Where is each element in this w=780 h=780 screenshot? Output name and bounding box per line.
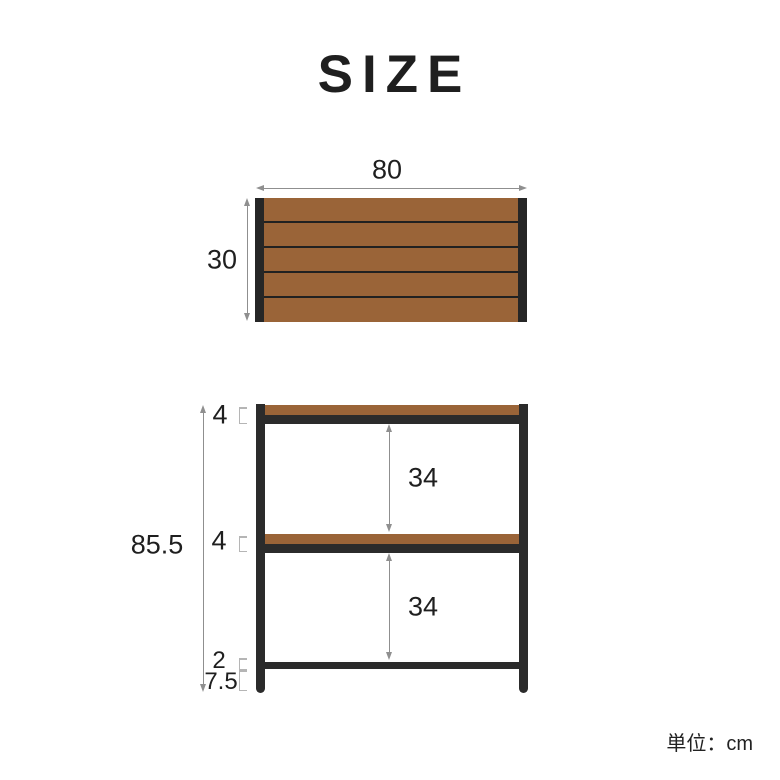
top-width-label: 80 xyxy=(372,157,402,184)
total-height-arrow-icon xyxy=(199,405,208,692)
left-leg xyxy=(256,404,265,693)
depth-dimension-arrow-icon xyxy=(243,198,252,321)
middle-shelf-frame xyxy=(256,544,528,553)
top-view-right-frame xyxy=(518,198,527,322)
size-diagram: SIZE 80 30 85.5 4 4 2 7.5 34 34 単位：cm xyxy=(0,0,780,780)
width-dimension-arrow-icon xyxy=(256,184,527,193)
top-depth-label: 30 xyxy=(207,247,237,274)
plank-divider xyxy=(263,246,519,248)
lower-gap-arrow-icon xyxy=(385,553,394,660)
lower-gap-label: 34 xyxy=(408,594,438,621)
top-shelf-frame xyxy=(256,415,528,424)
top-shelf-thickness-label: 4 xyxy=(212,402,227,429)
right-leg xyxy=(519,404,528,693)
leg-bracket-icon xyxy=(239,670,249,691)
top-view-left-frame xyxy=(255,198,264,322)
leg-height-label: 7.5 xyxy=(204,670,237,694)
top-view-panel xyxy=(255,198,527,322)
bottom-crossbar xyxy=(258,662,526,669)
middle-shelf-bracket-icon xyxy=(239,536,249,552)
total-height-label: 85.5 xyxy=(131,532,184,559)
page-title: SIZE xyxy=(0,44,780,105)
middle-shelf-wood xyxy=(265,534,519,544)
plank-divider xyxy=(263,221,519,223)
top-shelf-bracket-icon xyxy=(239,407,249,424)
bottom-bar-bracket-icon xyxy=(239,658,249,670)
middle-shelf-thickness-label: 4 xyxy=(211,528,226,555)
upper-gap-label: 34 xyxy=(408,465,438,492)
upper-gap-arrow-icon xyxy=(385,424,394,532)
top-shelf-wood xyxy=(265,405,519,415)
plank-divider xyxy=(263,296,519,298)
plank-divider xyxy=(263,271,519,273)
unit-note: 単位：cm xyxy=(666,727,753,756)
